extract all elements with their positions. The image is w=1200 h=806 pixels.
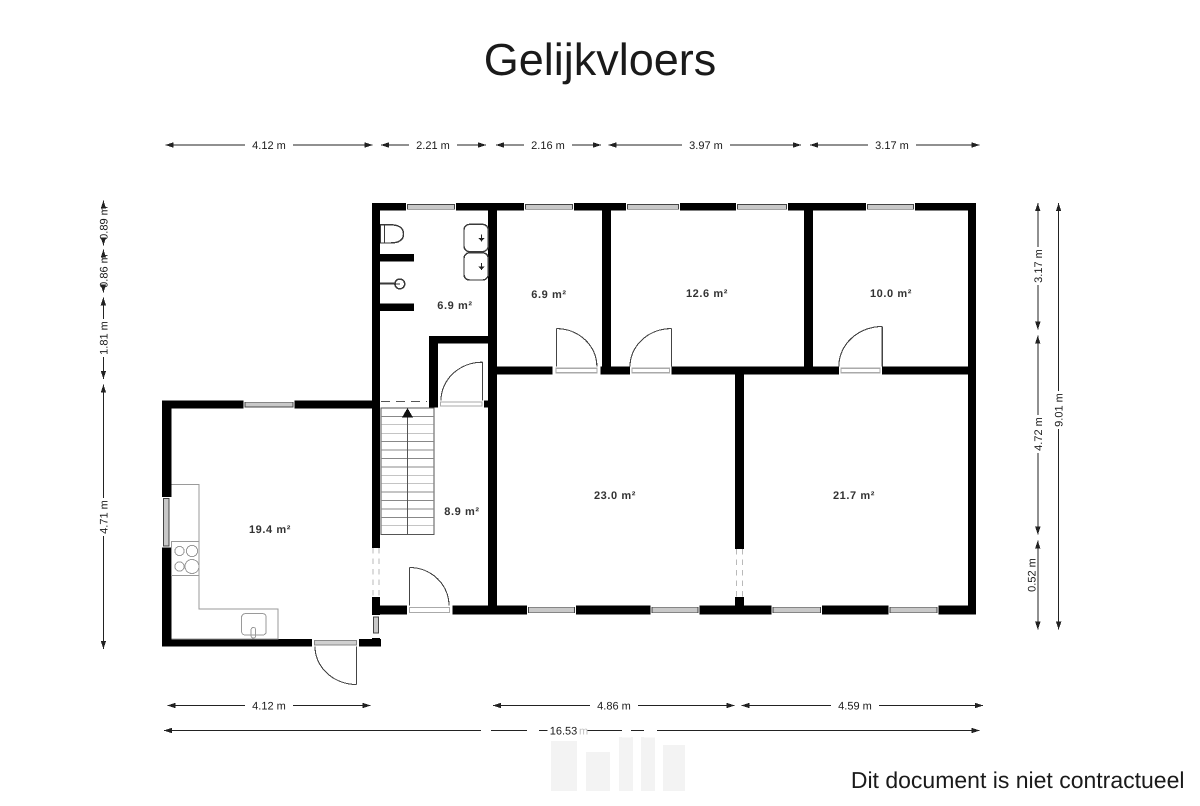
svg-text:2.21 m: 2.21 m <box>416 140 450 152</box>
svg-text:4.12 m: 4.12 m <box>252 701 286 713</box>
svg-text:Gelijkvloers: Gelijkvloers <box>484 34 717 85</box>
svg-text:3.17 m: 3.17 m <box>875 140 909 152</box>
svg-text:0.86 m: 0.86 m <box>98 254 110 288</box>
svg-text:16.53: 16.53 <box>550 726 578 738</box>
svg-text:12.6 m²: 12.6 m² <box>686 288 728 300</box>
svg-text:m: m <box>579 726 588 738</box>
svg-text:9.01 m: 9.01 m <box>1054 393 1066 427</box>
svg-text:1.81 m: 1.81 m <box>98 321 110 355</box>
svg-text:Dit document is niet contractu: Dit document is niet contractueel <box>851 767 1185 793</box>
svg-text:10.0 m²: 10.0 m² <box>870 288 912 300</box>
svg-text:0.52 m: 0.52 m <box>1027 558 1039 592</box>
svg-text:3.17 m: 3.17 m <box>1033 249 1045 283</box>
svg-text:6.9 m²: 6.9 m² <box>437 300 472 312</box>
svg-text:23.0 m²: 23.0 m² <box>594 490 636 502</box>
svg-text:21.7 m²: 21.7 m² <box>833 490 875 502</box>
svg-text:8.9 m²: 8.9 m² <box>444 506 479 518</box>
svg-text:4.12 m: 4.12 m <box>252 140 286 152</box>
svg-text:4.72 m: 4.72 m <box>1033 417 1045 451</box>
svg-text:4.59 m: 4.59 m <box>838 701 872 713</box>
svg-text:2.16 m: 2.16 m <box>531 140 565 152</box>
svg-text:19.4 m²: 19.4 m² <box>249 524 291 536</box>
svg-text:4.86 m: 4.86 m <box>597 701 631 713</box>
svg-text:0.89 m: 0.89 m <box>98 206 110 240</box>
svg-text:3.97 m: 3.97 m <box>689 140 723 152</box>
svg-text:4.71 m: 4.71 m <box>98 500 110 534</box>
svg-text:6.9 m²: 6.9 m² <box>531 289 566 301</box>
